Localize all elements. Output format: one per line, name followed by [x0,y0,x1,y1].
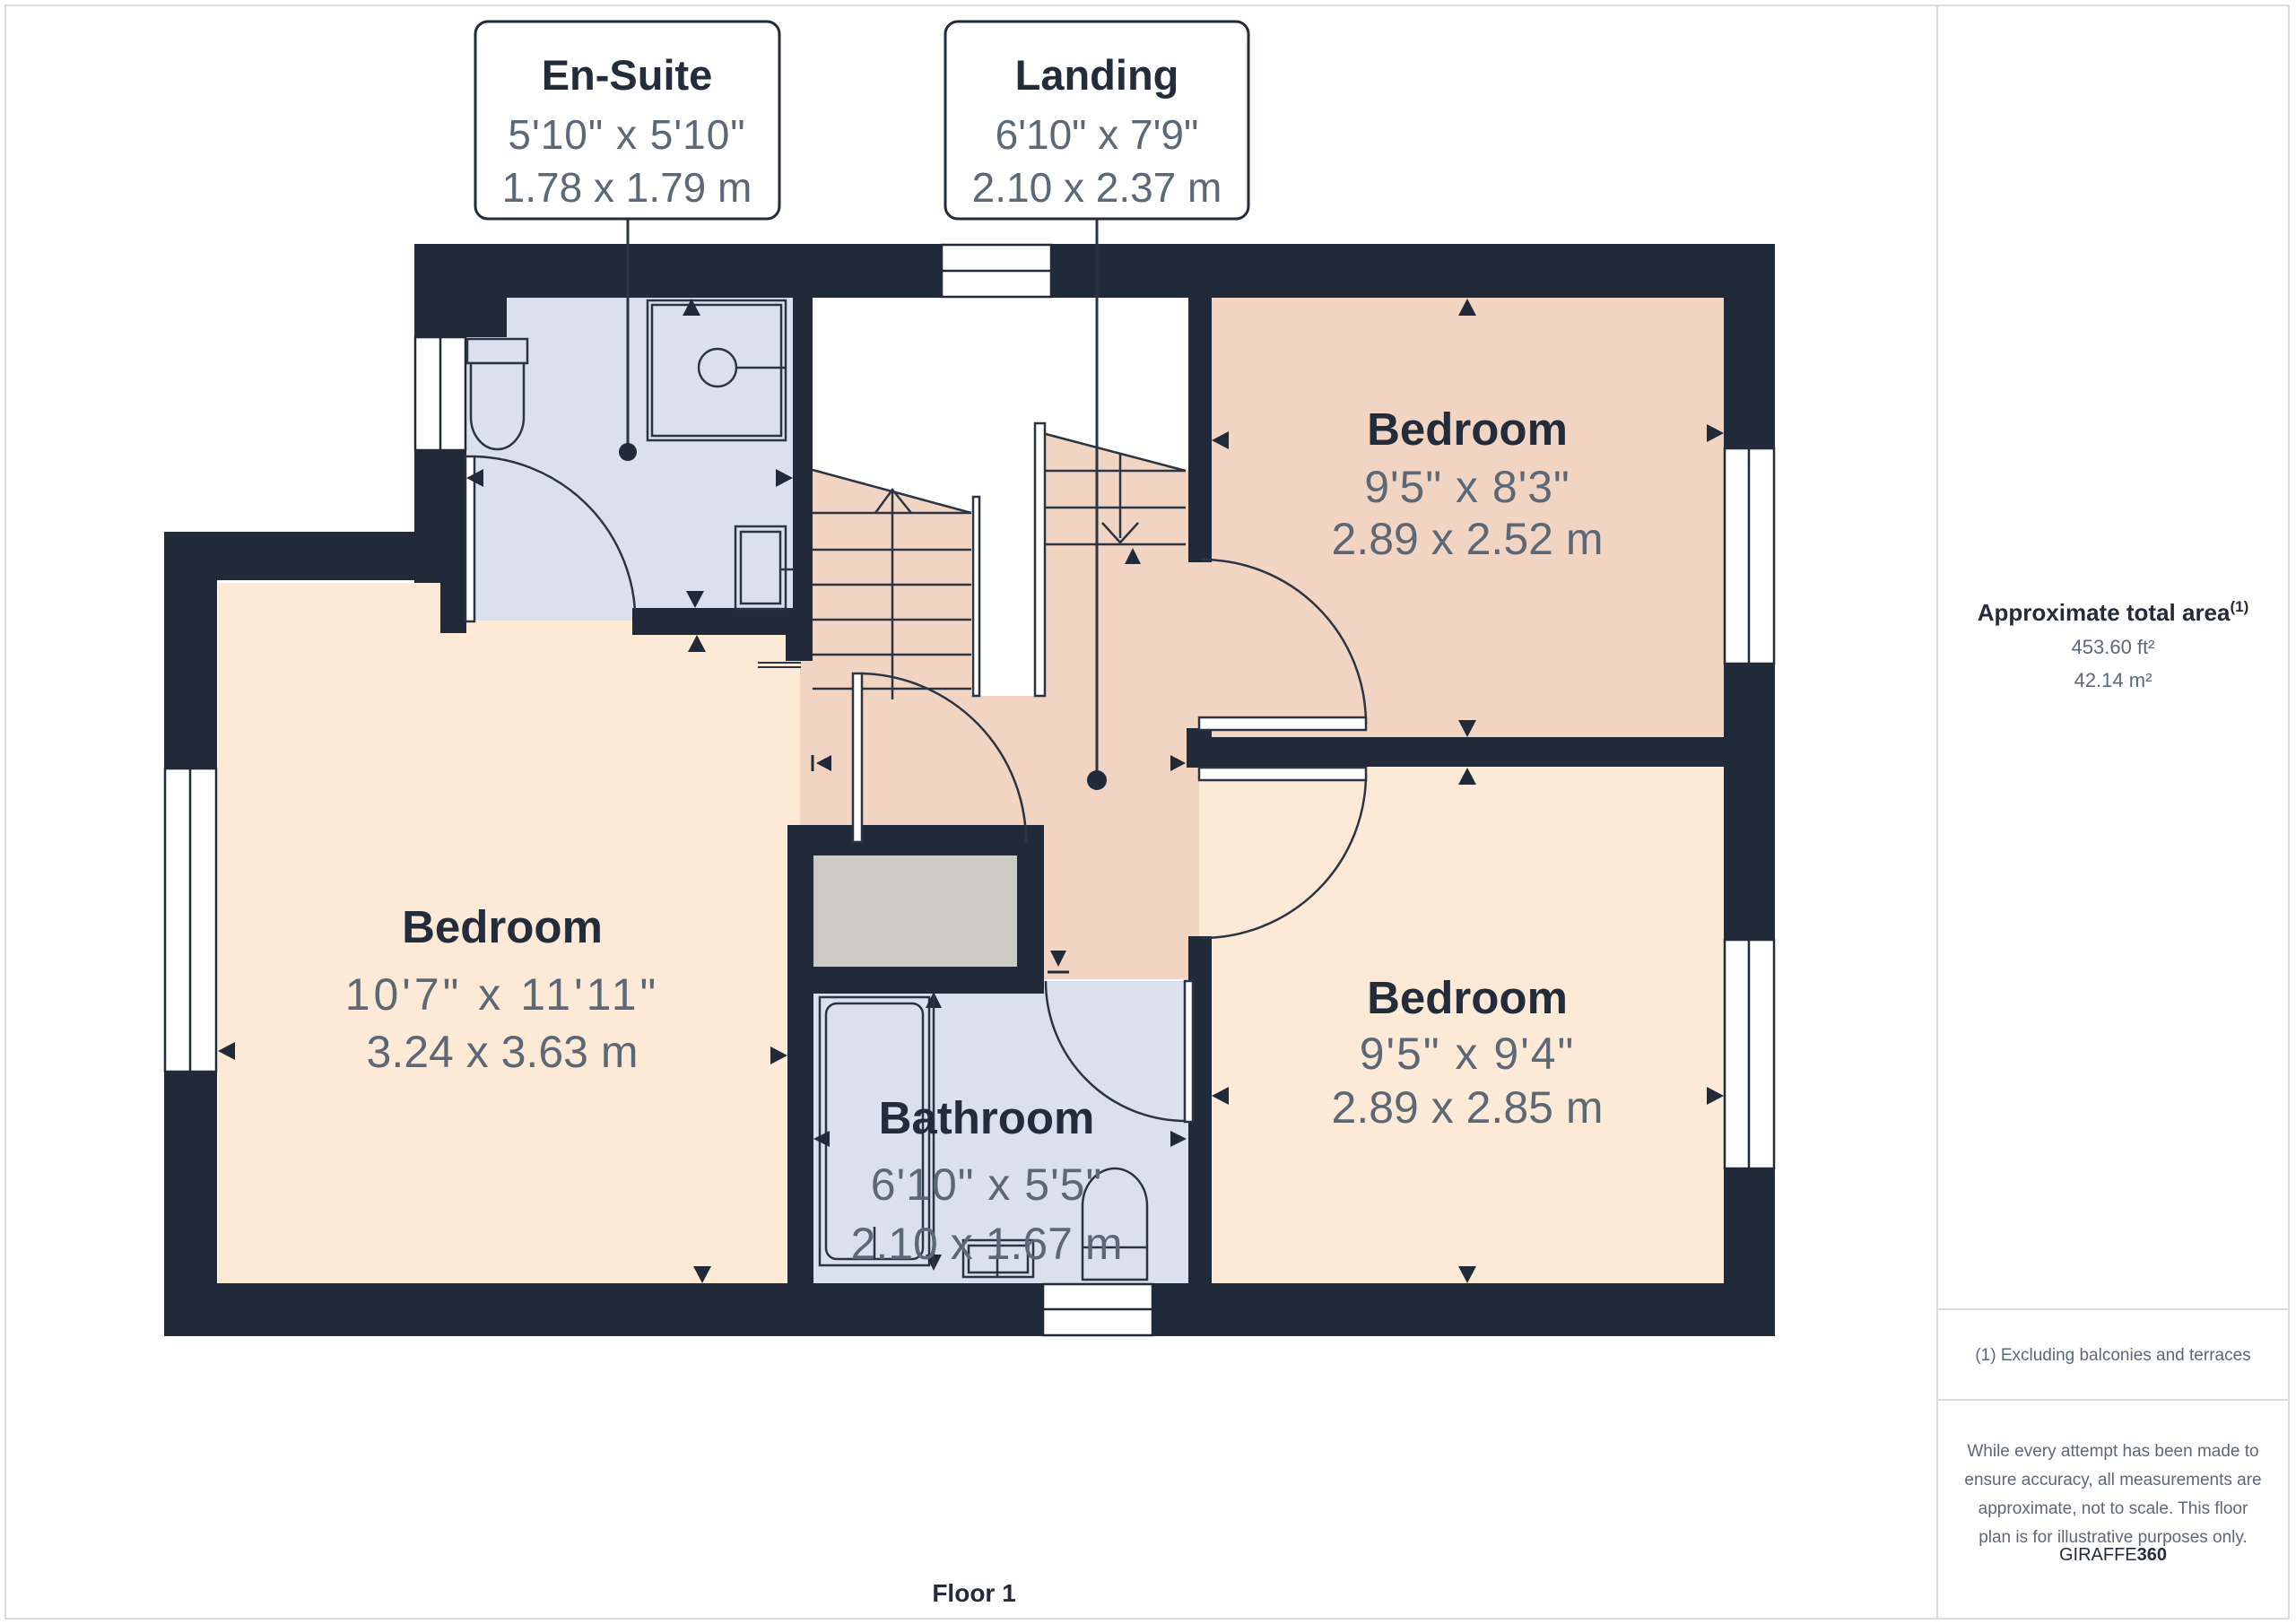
svg-text:Bedroom: Bedroom [402,901,603,952]
svg-text:En-Suite: En-Suite [542,51,713,99]
svg-text:42.14 m²: 42.14 m² [2074,669,2152,691]
svg-text:Bedroom: Bedroom [1367,972,1568,1023]
svg-text:approximate, not to scale. Thi: approximate, not to scale. This floor [1979,1499,2248,1518]
svg-text:10'7" x 11'11": 10'7" x 11'11" [345,969,660,1020]
svg-text:Landing: Landing [1015,51,1179,99]
svg-text:Bathroom: Bathroom [879,1092,1095,1143]
svg-text:9'5" x 9'4": 9'5" x 9'4" [1360,1029,1576,1079]
svg-text:(1) Excluding balconies and te: (1) Excluding balconies and terraces [1975,1346,2250,1365]
svg-text:Floor 1: Floor 1 [932,1579,1015,1607]
svg-text:6'10" x 7'9": 6'10" x 7'9" [996,111,1199,158]
svg-text:GIRAFFE360: GIRAFFE360 [2059,1545,2167,1565]
svg-text:plan is for illustrative purpo: plan is for illustrative purposes only. [1979,1528,2248,1547]
svg-text:Approximate total area(1): Approximate total area(1) [1978,598,2249,626]
svg-text:6'10" x 5'5": 6'10" x 5'5" [871,1159,1102,1210]
svg-text:2.10 x 1.67 m: 2.10 x 1.67 m [851,1219,1123,1269]
svg-text:5'10" x 5'10": 5'10" x 5'10" [508,111,745,158]
svg-text:453.60 ft²: 453.60 ft² [2072,636,2155,658]
svg-text:2.89 x 2.52 m: 2.89 x 2.52 m [1332,514,1604,564]
svg-text:9'5" x 8'3": 9'5" x 8'3" [1364,462,1570,512]
svg-text:Bedroom: Bedroom [1367,404,1568,455]
svg-text:3.24 x 3.63 m: 3.24 x 3.63 m [367,1027,639,1077]
svg-text:2.10 x 2.37 m: 2.10 x 2.37 m [972,164,1222,211]
svg-text:While every attempt has been m: While every attempt has been made to [1967,1442,2258,1461]
svg-text:ensure accuracy, all measureme: ensure accuracy, all measurements are [1964,1471,2261,1489]
svg-text:2.89 x 2.85 m: 2.89 x 2.85 m [1332,1082,1604,1133]
svg-text:1.78 x 1.79 m: 1.78 x 1.79 m [502,164,752,211]
